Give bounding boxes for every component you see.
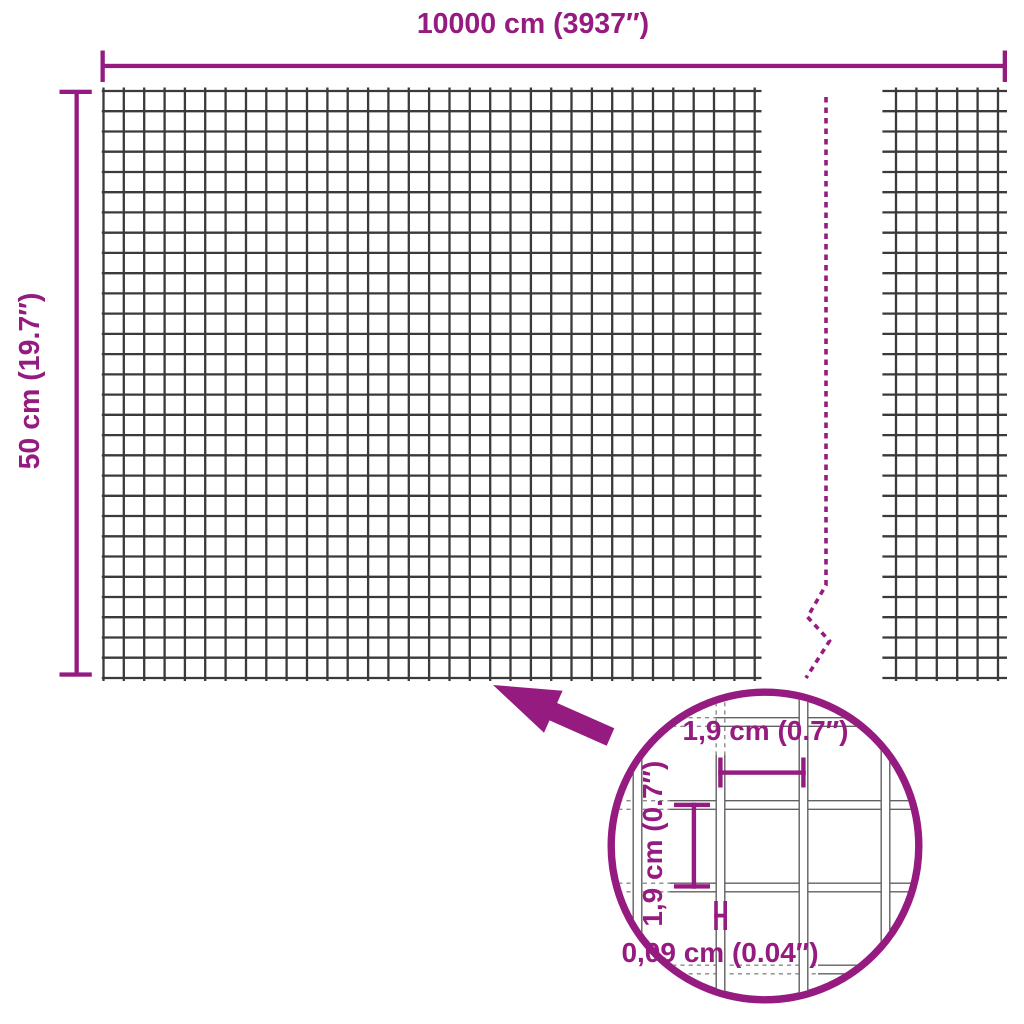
svg-text:0,09 cm (0.04″): 0,09 cm (0.04″) (621, 937, 818, 968)
svg-text:10000 cm (3937″): 10000 cm (3937″) (417, 8, 649, 40)
svg-text:50 cm (19.7″): 50 cm (19.7″) (14, 293, 46, 470)
svg-text:1,9 cm (0.7″): 1,9 cm (0.7″) (637, 761, 668, 927)
svg-text:1,9 cm (0.7″): 1,9 cm (0.7″) (683, 715, 849, 746)
